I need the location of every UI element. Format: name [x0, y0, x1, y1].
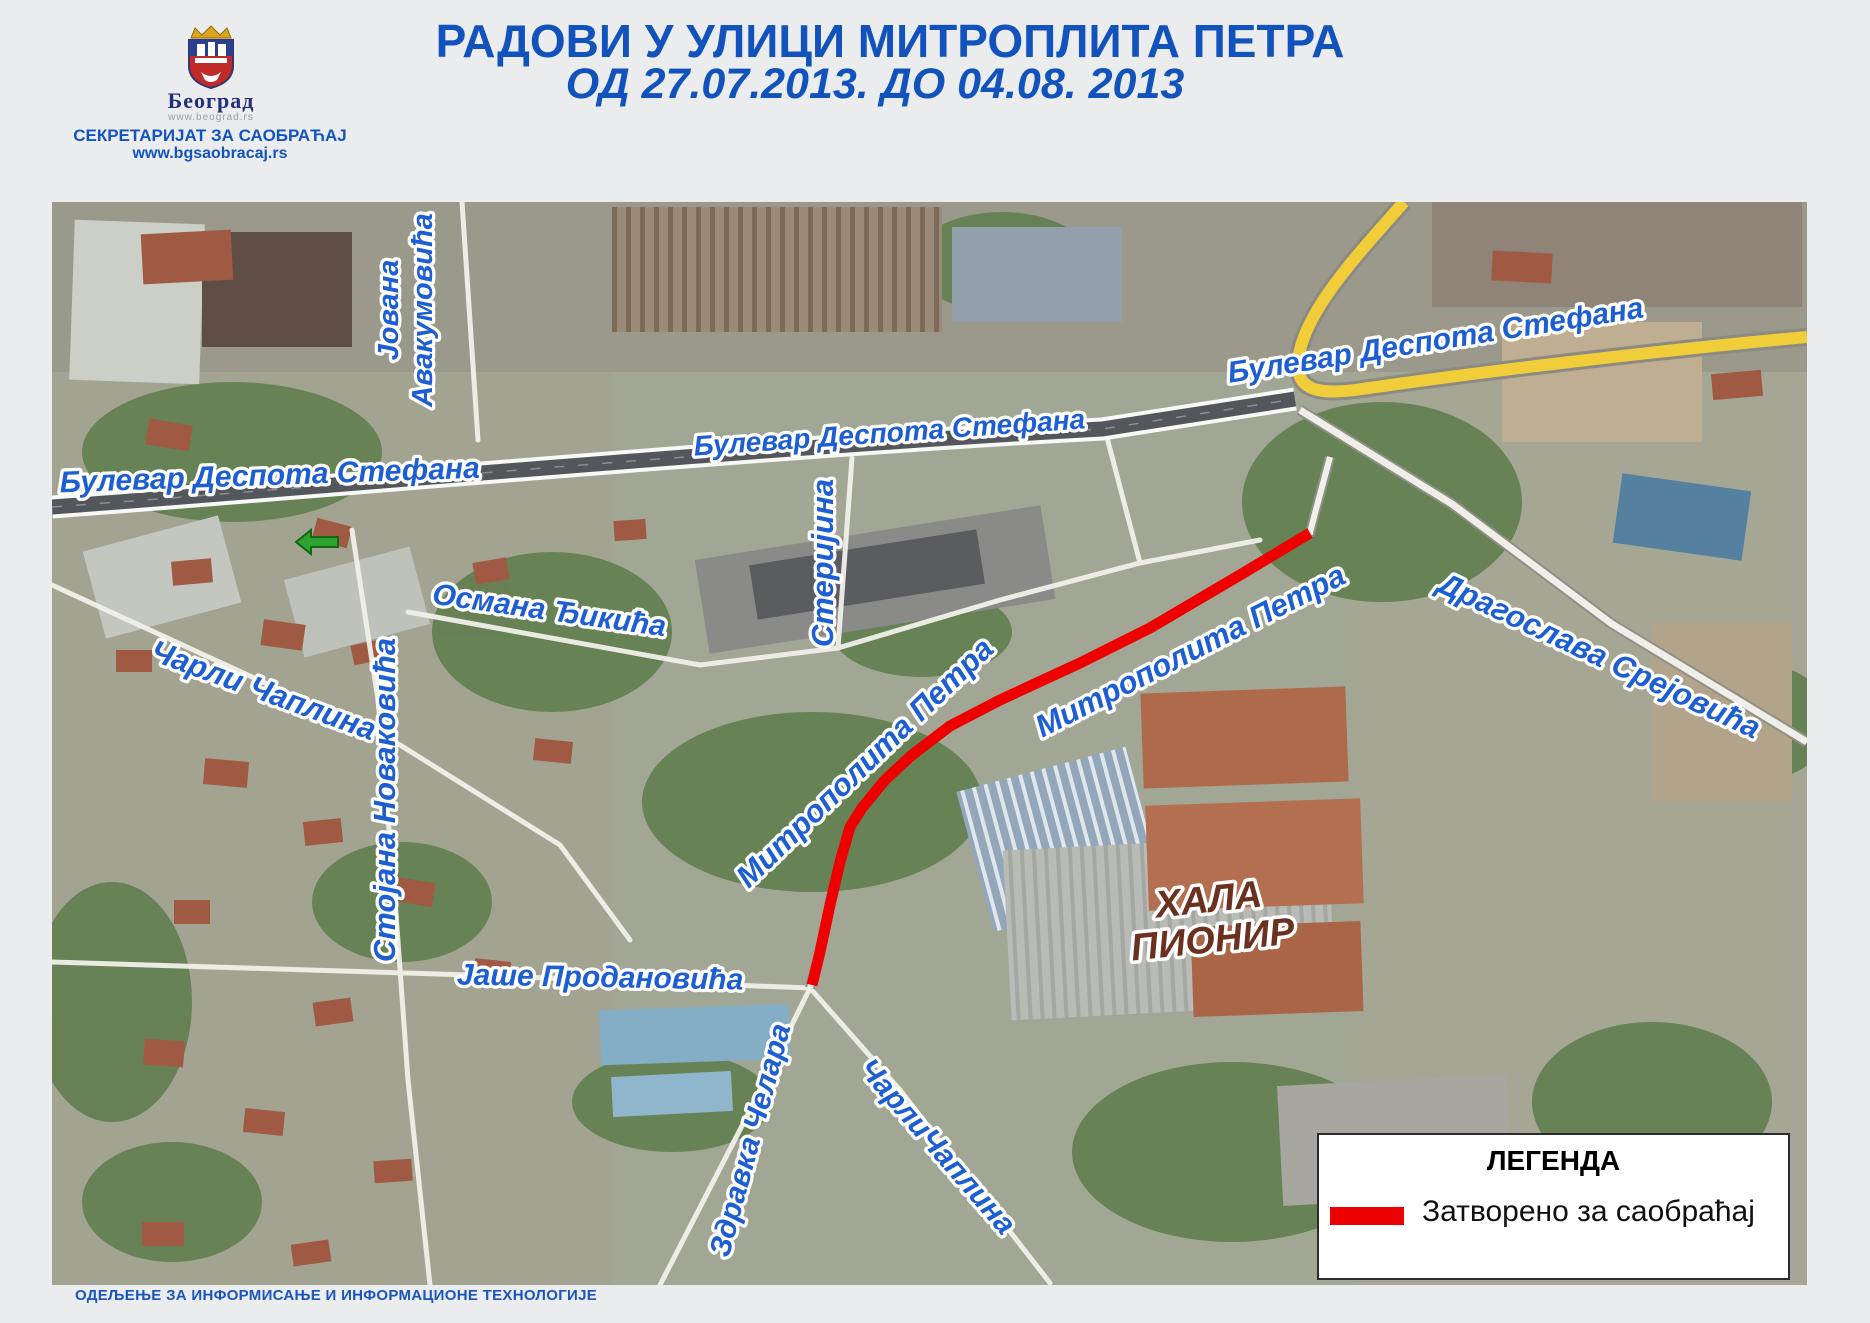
closed-road-swatch — [1330, 1207, 1404, 1225]
shield-icon — [189, 40, 233, 88]
street-label-sterijina: Стеријина — [805, 479, 840, 647]
page-title-line2: ОД 27.07.2013. ДО 04.08. 2013 — [390, 60, 1360, 109]
crown-icon — [191, 26, 231, 38]
city-logo-name: Београд — [140, 88, 282, 114]
secretariat-url: www.bgsaobracaj.rs — [60, 145, 360, 163]
legend-box: ЛЕГЕНДА Затворено за саобраћај — [1317, 1133, 1790, 1280]
street-label-jase: Јаше Продановића — [457, 959, 744, 997]
street-label-stojana: Стојана Новаковића — [367, 638, 402, 962]
secretariat-title: СЕКРЕТАРИЈАТ ЗА САОБРАЋАЈ — [60, 126, 360, 146]
legend-item-label: Затворено за саобраћај — [1422, 1195, 1755, 1229]
footer-department: ОДЕЉЕЊЕ ЗА ИНФОРМИСАЊЕ И ИНФОРМАЦИОНЕ ТЕ… — [75, 1287, 597, 1304]
street-label-jovana-line1: Јована — [373, 260, 405, 361]
legend-title: ЛЕГЕНДА — [1319, 1145, 1788, 1177]
page: { "header": { "logo": { "city_name": "Бе… — [0, 0, 1870, 1323]
street-label-jovana-line2: Авакумовића — [407, 213, 439, 408]
map-canvas: Булевар Деспота Стефана Булевар Деспота … — [52, 202, 1807, 1285]
belgrade-coat-of-arms — [175, 24, 247, 90]
city-logo-url: www.beograd.rs — [140, 112, 282, 123]
